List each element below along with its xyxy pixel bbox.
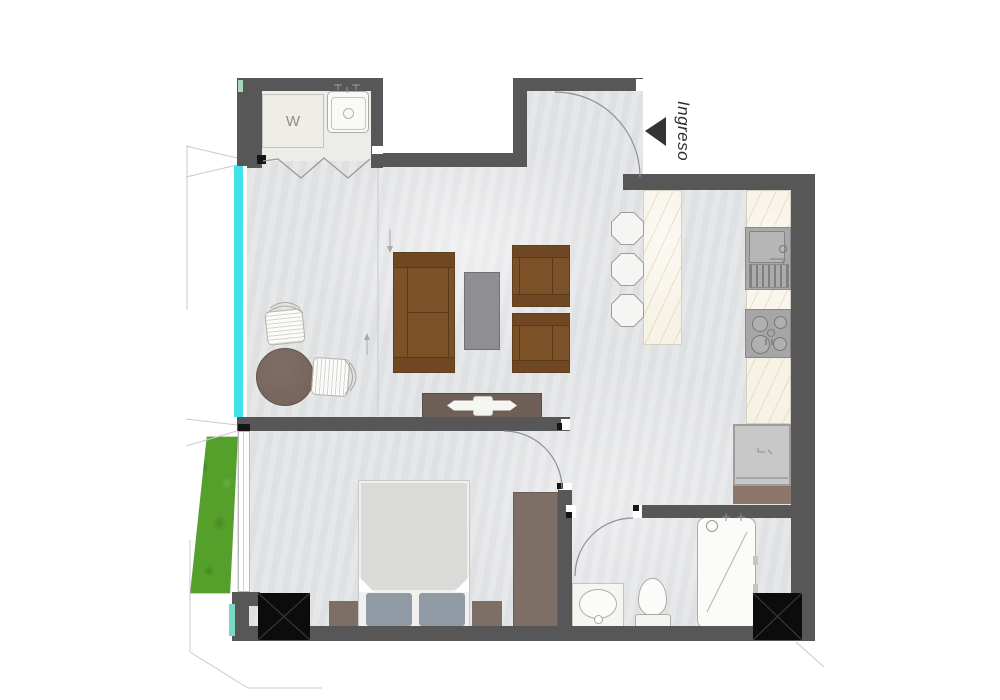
washer-label: W bbox=[263, 95, 323, 147]
dining-chair-top bbox=[264, 308, 305, 346]
shaft-bathroom bbox=[753, 593, 802, 640]
planter bbox=[188, 435, 240, 595]
wall-right bbox=[791, 174, 815, 641]
tick-bedroom-door-bottom bbox=[557, 483, 563, 489]
jamb-entry-door bbox=[636, 79, 643, 91]
sofa-armrest-bottom bbox=[394, 357, 454, 372]
bed-blanket bbox=[361, 483, 467, 590]
dining-table bbox=[256, 348, 314, 406]
armchair-armrest-top bbox=[513, 246, 569, 258]
armchair-front-edge bbox=[519, 258, 520, 294]
wall-top-entry bbox=[513, 78, 643, 91]
nightstand-right bbox=[472, 601, 502, 628]
armchair-armrest-top bbox=[513, 314, 569, 326]
shaft-bedroom bbox=[258, 593, 310, 640]
tick-bath-left bbox=[566, 512, 572, 518]
armchair-armrest-bottom bbox=[513, 360, 569, 372]
wall-top-laundry bbox=[237, 78, 383, 91]
window-frame-gap bbox=[243, 166, 247, 417]
wardrobe bbox=[513, 492, 558, 628]
kitchen-faucet bbox=[779, 245, 787, 253]
dining-chair-right bbox=[311, 357, 351, 397]
sofa-front-edge bbox=[448, 268, 449, 357]
bathtub-drain bbox=[706, 520, 718, 532]
tv bbox=[447, 399, 517, 412]
armchair-backrest bbox=[552, 258, 569, 294]
jamb-bedroom-door-top bbox=[561, 419, 570, 430]
tick-bedroom-door-top bbox=[557, 423, 562, 430]
window-bedroom bbox=[238, 431, 250, 592]
kitchen-cabinet bbox=[733, 486, 791, 504]
wall-kitchen-top bbox=[623, 174, 815, 190]
window-glass-living bbox=[234, 166, 243, 417]
exterior-notch bbox=[383, 58, 513, 154]
vanity-faucet bbox=[594, 615, 603, 624]
armchair-armrest-bottom bbox=[513, 294, 569, 306]
bar-stool-2-seat bbox=[612, 254, 643, 285]
burner-4 bbox=[773, 337, 787, 351]
wall-living-bedroom bbox=[237, 417, 570, 431]
armchair-1 bbox=[512, 245, 570, 307]
window-sliver-top bbox=[238, 80, 243, 92]
laundry-sink-drain bbox=[343, 108, 354, 119]
bar-stool-1-seat bbox=[612, 213, 643, 244]
kitchen-island bbox=[643, 190, 682, 345]
washer: W bbox=[262, 94, 324, 148]
window-sliver-bottom bbox=[229, 604, 235, 636]
floor-plan: W bbox=[0, 0, 1000, 700]
nightstand-left bbox=[329, 601, 358, 628]
dish-drainer bbox=[749, 264, 789, 288]
bathtub-hinge-2 bbox=[753, 584, 758, 593]
pillow-left bbox=[366, 593, 412, 626]
sofa-armrest-top bbox=[394, 253, 454, 268]
jamb-laundry bbox=[372, 146, 383, 154]
wall-entry-left bbox=[513, 78, 527, 167]
tick-bath-right bbox=[633, 505, 639, 511]
bathtub-hinge-1 bbox=[753, 556, 758, 565]
bathtub bbox=[697, 517, 756, 629]
entrance-label: Ingreso bbox=[675, 91, 693, 171]
bar-stool-3-seat bbox=[612, 295, 643, 326]
kitchen-counter bbox=[746, 190, 791, 424]
burner-2 bbox=[751, 335, 770, 354]
window-bedroom-mullion bbox=[243, 431, 244, 592]
tick-laundry-door bbox=[257, 155, 266, 164]
sofa-seat-divider bbox=[408, 312, 449, 313]
wall-notch-bottom bbox=[371, 153, 527, 167]
armchair-front-edge bbox=[519, 326, 520, 360]
burner-3 bbox=[774, 316, 787, 329]
armchair-2 bbox=[512, 313, 570, 373]
sofa-backrest bbox=[394, 268, 408, 357]
wall-bottom bbox=[248, 626, 815, 641]
wall-bath-top bbox=[642, 505, 792, 518]
toilet-bowl bbox=[638, 578, 667, 616]
armchair-backrest bbox=[552, 326, 569, 360]
exterior-entry-side bbox=[643, 58, 838, 175]
refrigerator-door-line bbox=[736, 477, 788, 479]
coffee-table bbox=[464, 272, 500, 350]
cooktop-knob bbox=[767, 329, 775, 337]
burner-1 bbox=[752, 316, 768, 332]
sofa bbox=[393, 252, 455, 373]
pillow-right bbox=[419, 593, 465, 626]
